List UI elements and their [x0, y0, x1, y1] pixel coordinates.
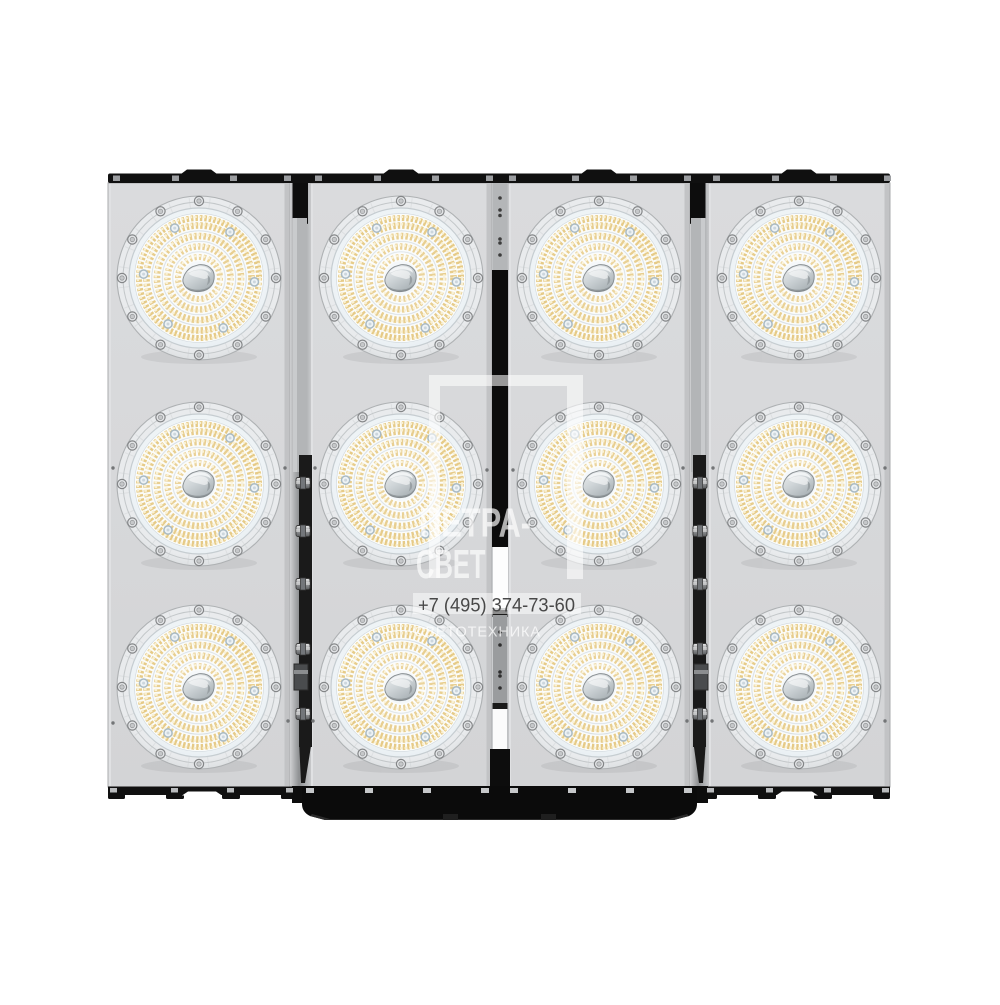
svg-text:СВЕТ: СВЕТ — [416, 541, 486, 587]
svg-text:+7 (495) 374-73-60: +7 (495) 374-73-60 — [418, 596, 575, 617]
svg-text:ПЕТРА-: ПЕТРА- — [419, 500, 531, 546]
svg-text:СВЕТОТЕХНИКА: СВЕТОТЕХНИКА — [414, 625, 540, 641]
